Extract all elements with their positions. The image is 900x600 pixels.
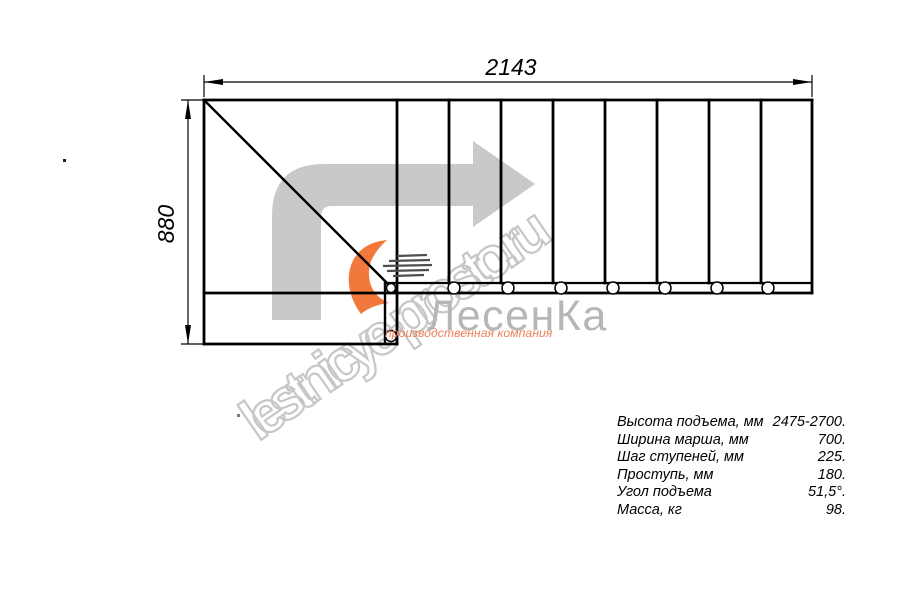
spec-table: Высота подъема, мм 2475-2700. Ширина мар… bbox=[617, 414, 846, 519]
spec-label: Масса, кг bbox=[617, 502, 682, 520]
dimension-left: 880 bbox=[153, 100, 204, 344]
spec-value: 225. bbox=[818, 449, 846, 467]
spec-label: Высота подъема, мм bbox=[617, 414, 764, 432]
spec-value: 180. bbox=[818, 467, 846, 485]
mount-hole bbox=[607, 282, 619, 294]
stair-drawing-page: lestnicye-prosto.ru bbox=[0, 0, 900, 600]
mount-hole bbox=[762, 282, 774, 294]
spec-value: 700. bbox=[818, 432, 846, 450]
arrowhead-left bbox=[204, 79, 223, 85]
arrowhead-right bbox=[793, 79, 812, 85]
spec-label: Проступь, мм bbox=[617, 467, 713, 485]
mount-hole bbox=[711, 282, 723, 294]
spec-value: 51,5°. bbox=[808, 484, 846, 502]
logo-subtitle: производственная компания bbox=[385, 326, 553, 340]
spec-row: Проступь, мм 180. bbox=[617, 467, 846, 485]
spec-value: 98. bbox=[826, 502, 846, 520]
spec-label: Шаг ступеней, мм bbox=[617, 449, 744, 467]
artifact-dot bbox=[63, 159, 66, 162]
spec-row: Масса, кг 98. bbox=[617, 502, 846, 520]
dimension-left-value: 880 bbox=[153, 205, 179, 244]
arrowhead-up bbox=[185, 100, 191, 119]
spec-value: 2475-2700. bbox=[773, 414, 846, 432]
spec-row: Шаг ступеней, мм 225. bbox=[617, 449, 846, 467]
arrowhead-down bbox=[185, 325, 191, 344]
spec-label: Ширина марша, мм bbox=[617, 432, 749, 450]
mount-hole bbox=[659, 282, 671, 294]
artifact-dot bbox=[237, 414, 240, 417]
spec-row: Угол подъема 51,5°. bbox=[617, 484, 846, 502]
dimension-top: 2143 bbox=[204, 54, 812, 97]
spec-row: Ширина марша, мм 700. bbox=[617, 432, 846, 450]
spec-label: Угол подъема bbox=[617, 484, 712, 502]
mount-hole bbox=[387, 284, 396, 293]
dimension-top-value: 2143 bbox=[484, 54, 536, 80]
spec-row: Высота подъема, мм 2475-2700. bbox=[617, 414, 846, 432]
